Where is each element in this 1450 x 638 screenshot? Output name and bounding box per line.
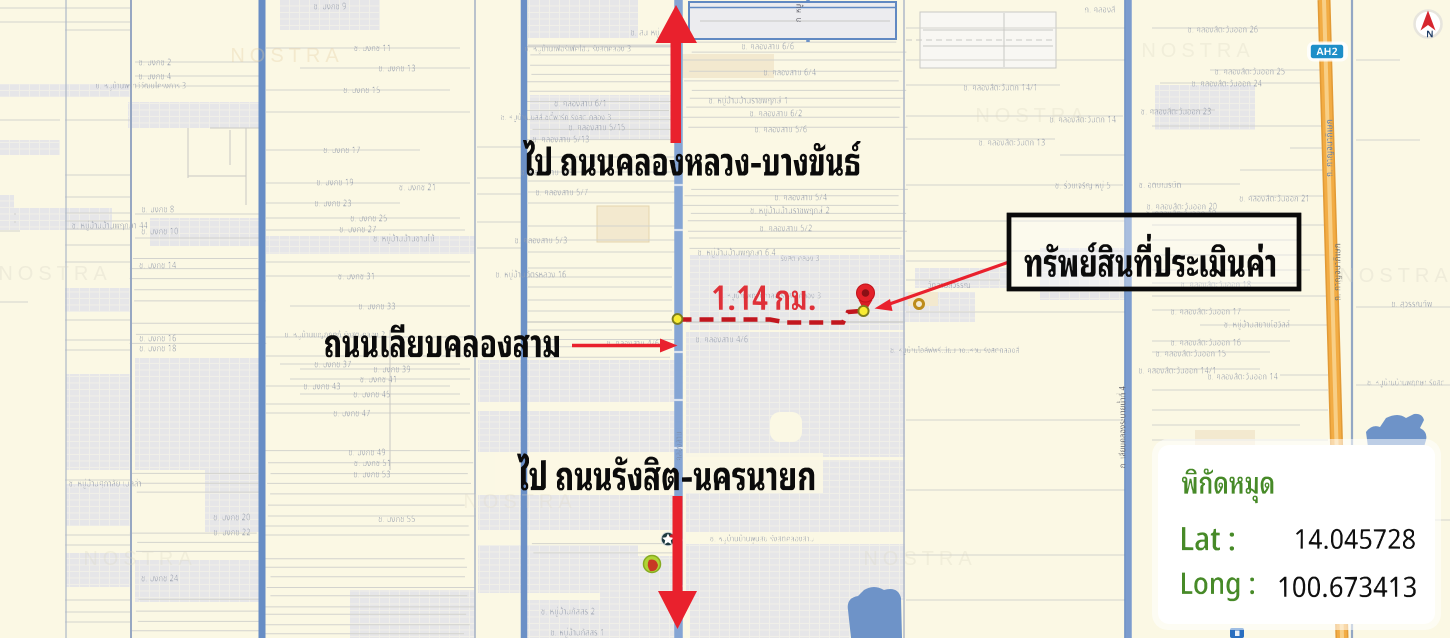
svg-text:NOSTRA: NOSTRA: [1141, 40, 1254, 62]
svg-text:NOSTRA: NOSTRA: [1339, 265, 1450, 287]
svg-text:NOSTRA: NOSTRA: [863, 548, 976, 570]
svg-text:NOSTRA: NOSTRA: [975, 105, 1088, 127]
svg-text:NOSTRA: NOSTRA: [463, 491, 576, 513]
svg-text:NOSTRA: NOSTRA: [230, 45, 343, 67]
svg-text:NOSTRA: NOSTRA: [83, 548, 196, 570]
svg-text:NOSTRA: NOSTRA: [0, 263, 112, 285]
